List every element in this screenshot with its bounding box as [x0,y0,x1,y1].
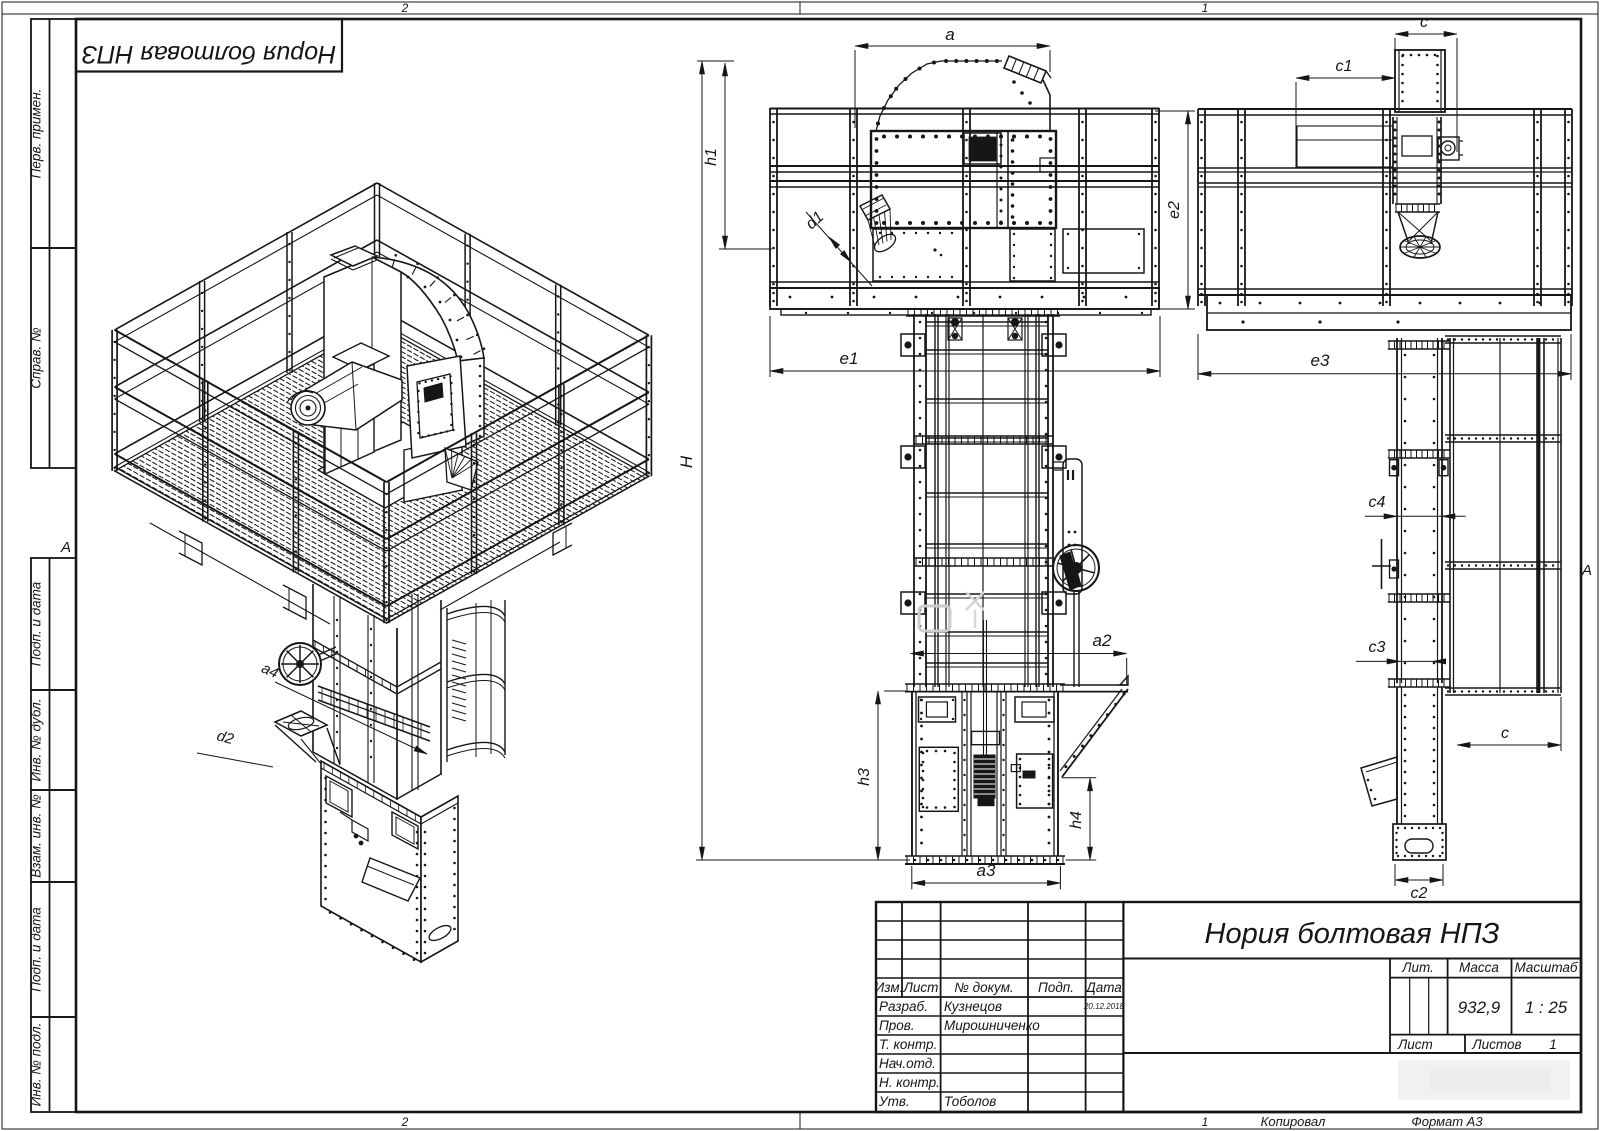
svg-text:Взам. инв. №: Взам. инв. № [29,794,44,878]
svg-text:Нория болтовая НПЗ: Нория болтовая НПЗ [82,40,336,68]
svg-text:Кузнецов: Кузнецов [944,999,1002,1014]
svg-text:932,9: 932,9 [1458,998,1501,1017]
svg-text:1: 1 [1202,1,1209,15]
svg-text:c4: c4 [1369,494,1386,511]
svg-text:Нория болтовая НПЗ: Нория болтовая НПЗ [1205,918,1500,950]
svg-text:А: А [60,539,71,556]
svg-text:Справ. №: Справ. № [29,327,44,389]
svg-text:Нач.отд.: Нач.отд. [879,1056,936,1071]
svg-text:Перв. примен.: Перв. примен. [29,89,44,179]
svg-text:e3: e3 [1311,351,1330,370]
svg-text:Изм.: Изм. [875,980,904,995]
svg-text:H: H [677,455,696,468]
svg-text:1: 1 [1549,1037,1557,1052]
svg-text:Копировал: Копировал [1261,1114,1326,1129]
svg-text:А: А [1581,562,1592,579]
svg-text:Масса: Масса [1459,960,1499,975]
svg-text:Инв. № дубл.: Инв. № дубл. [29,698,44,781]
svg-text:c: c [1501,725,1509,742]
svg-text:№ докум.: № докум. [954,980,1013,995]
svg-text:Т. контр.: Т. контр. [879,1037,937,1052]
svg-text:Утв.: Утв. [878,1094,910,1109]
svg-text:c3: c3 [1369,639,1386,656]
svg-text:Пров.: Пров. [879,1018,915,1033]
svg-text:Лит.: Лит. [1401,960,1434,975]
svg-text:a: a [945,25,954,44]
svg-text:Формат А3: Формат А3 [1411,1114,1483,1129]
svg-text:e1: e1 [840,349,859,368]
svg-text:a2: a2 [1093,631,1112,650]
svg-text:Н. контр.: Н. контр. [879,1075,940,1090]
svg-text:Инв. № подл.: Инв. № подл. [29,1023,44,1107]
svg-text:Лист: Лист [903,980,939,995]
svg-text:2: 2 [401,1,409,15]
svg-text:2: 2 [401,1115,409,1129]
svg-text:c: c [1420,14,1428,31]
svg-text:Листов: Листов [1471,1037,1521,1052]
svg-text:1 : 25: 1 : 25 [1525,998,1568,1017]
svg-text:1: 1 [1202,1115,1209,1129]
svg-text:20.12.2018: 20.12.2018 [1083,1002,1125,1011]
svg-text:Подп. и дата: Подп. и дата [29,907,44,992]
svg-text:c1: c1 [1336,58,1353,75]
svg-text:Лист: Лист [1397,1037,1433,1052]
svg-text:Разраб.: Разраб. [879,999,928,1014]
svg-text:a3: a3 [977,861,996,880]
svg-text:c2: c2 [1411,885,1428,902]
svg-text:h1: h1 [703,148,720,166]
svg-text:Дата: Дата [1084,980,1122,995]
svg-text:Мирошниченко: Мирошниченко [944,1018,1040,1033]
svg-text:Тоболов: Тоболов [944,1094,996,1109]
svg-text:e2: e2 [1166,201,1183,219]
svg-text:Подп. и дата: Подп. и дата [29,581,44,666]
svg-text:h3: h3 [856,768,873,786]
svg-text:Масштаб: Масштаб [1514,960,1577,975]
svg-text:h4: h4 [1068,811,1085,829]
svg-text:Подп.: Подп. [1038,980,1074,995]
